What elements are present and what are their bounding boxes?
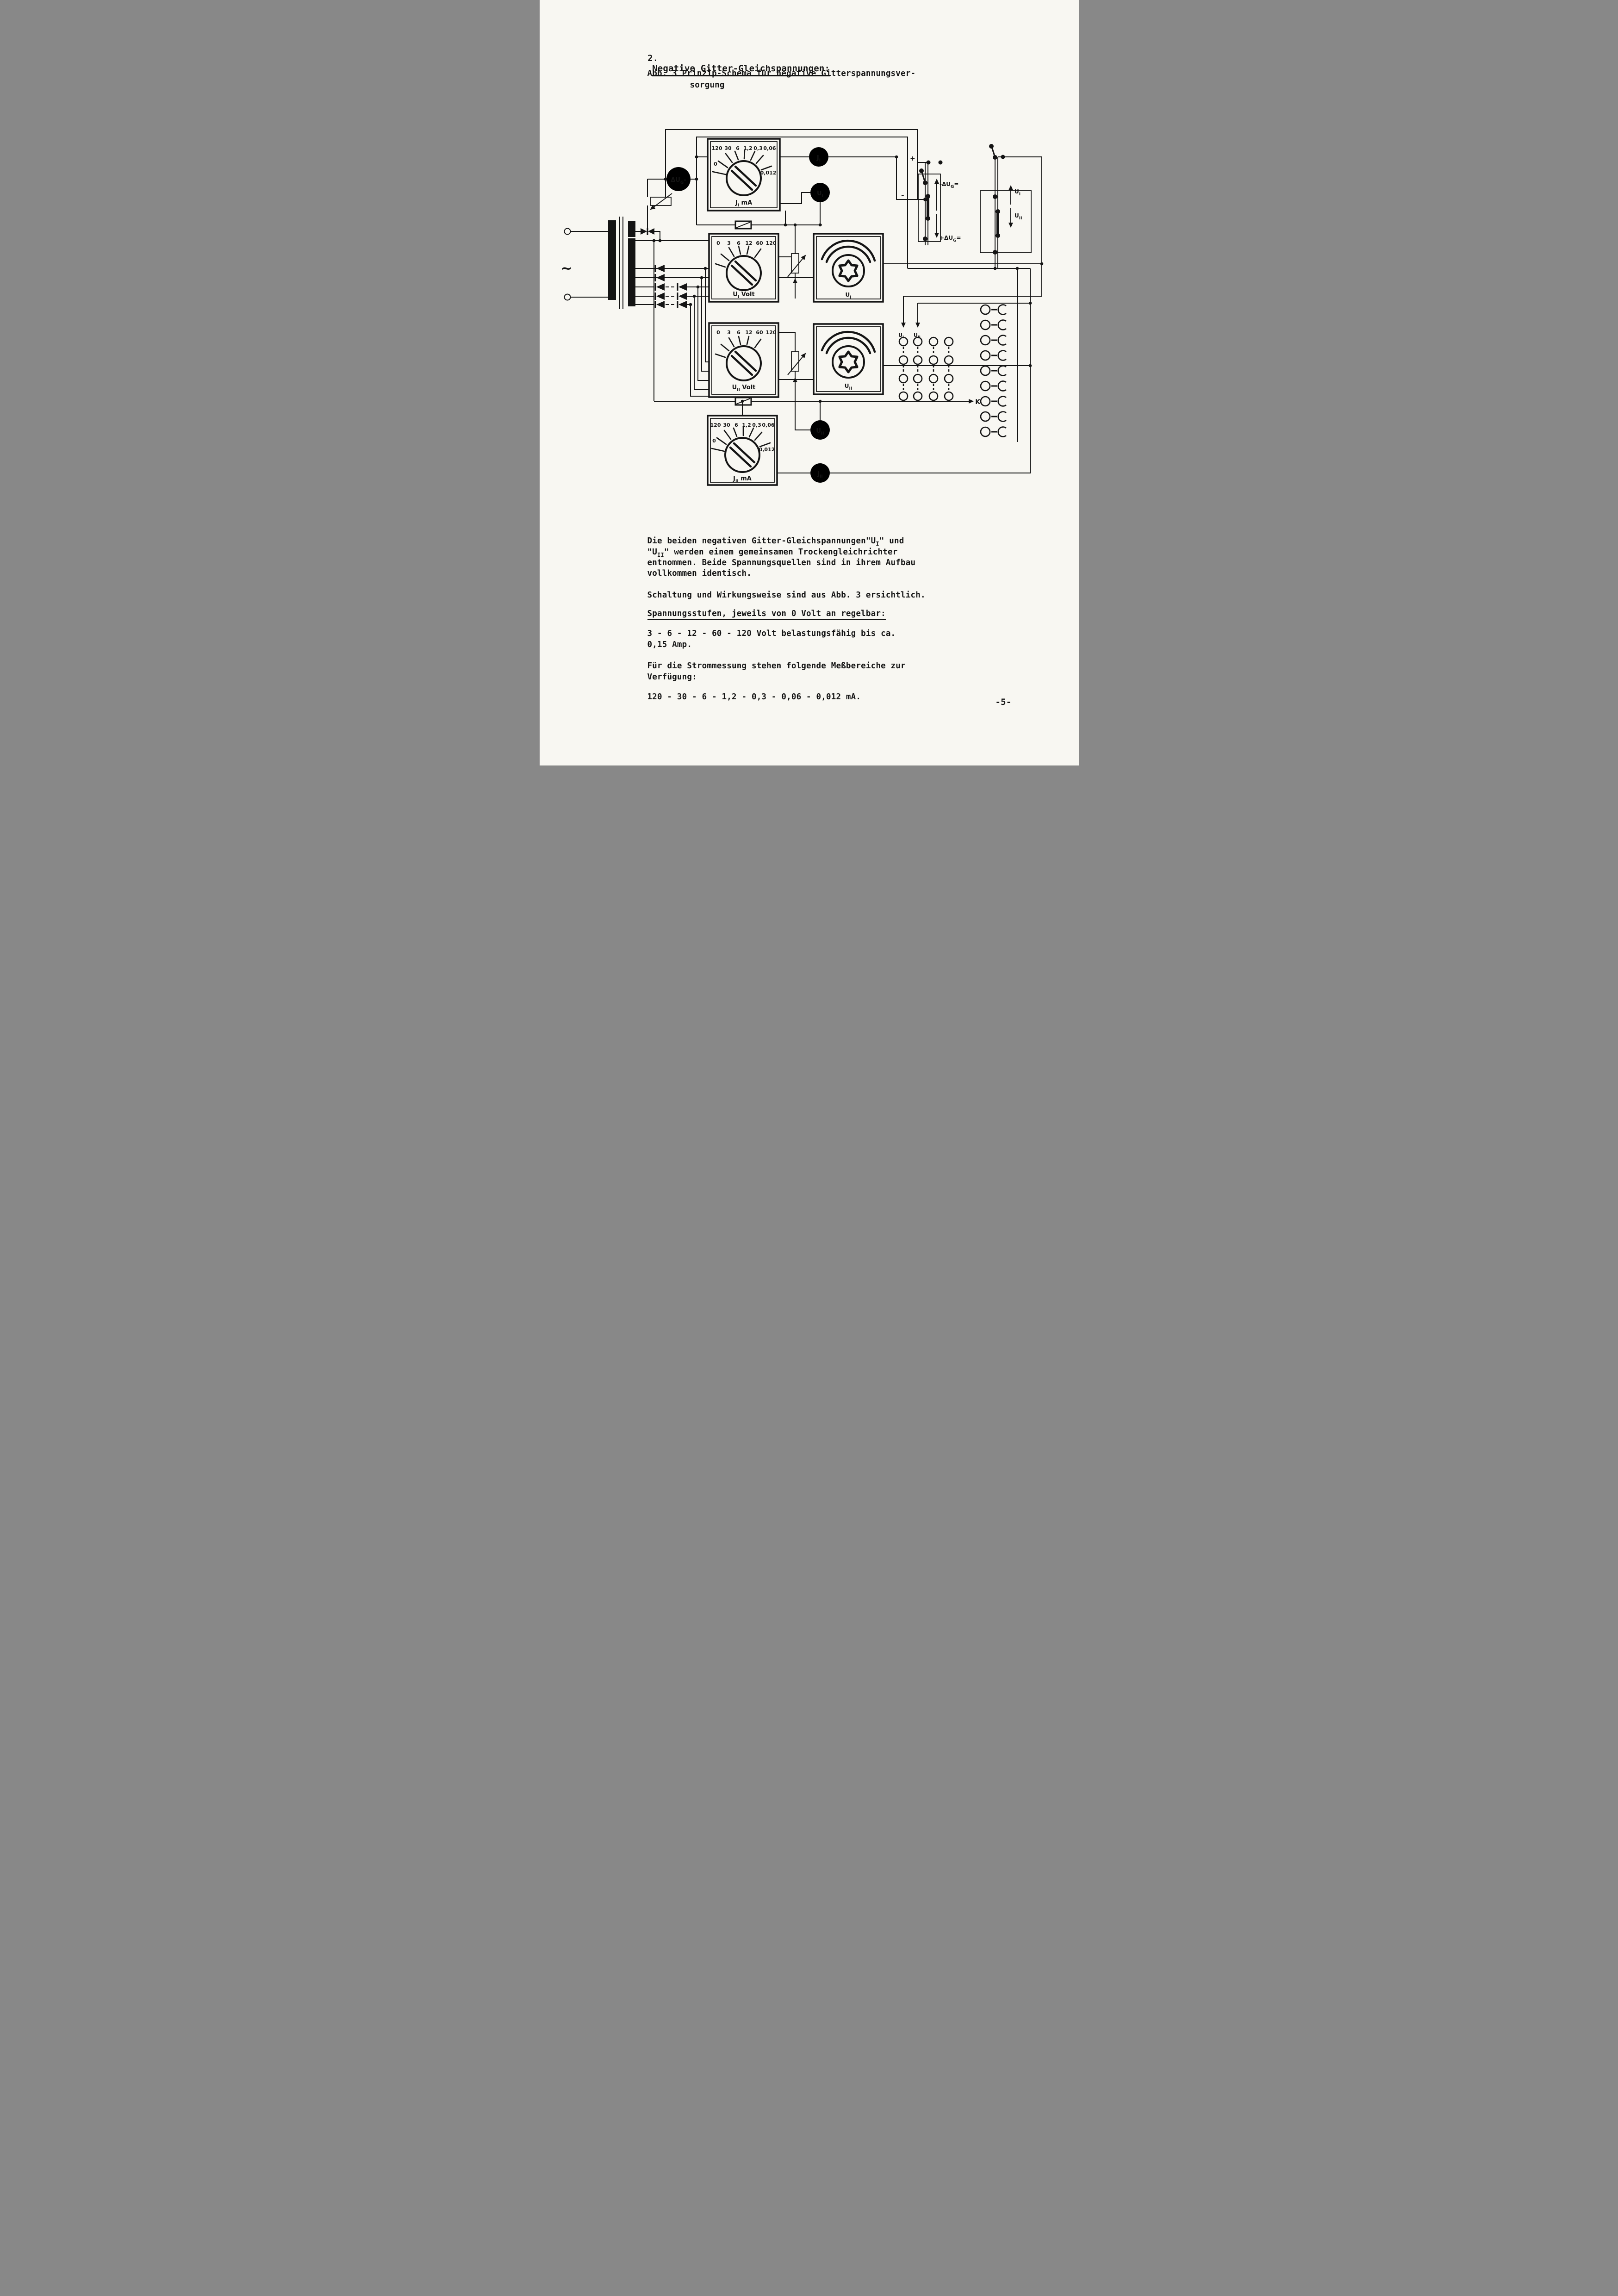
scale-label: 0,012 (760, 170, 776, 176)
scale-label: 0 (716, 330, 720, 336)
variac-ui: UI (814, 234, 883, 302)
rectifier-diode-bank (635, 239, 709, 396)
pos-dug-label: +ΔUG= (940, 235, 961, 243)
socket-row (981, 366, 1006, 376)
rotary-knob (725, 438, 759, 472)
scale-label: 12 (745, 240, 752, 246)
plus-label: + (910, 155, 915, 162)
bus-u2-label: UII (1014, 212, 1022, 221)
minus-label: - (901, 191, 904, 199)
primary-winding (608, 220, 616, 300)
diode-pair-left (641, 228, 647, 235)
body-line: Verfügung: (647, 672, 697, 682)
socket-row (981, 336, 1006, 345)
scale-label: 120 (710, 422, 721, 428)
scale-label: 120 (765, 240, 776, 246)
body-line-underlined: Spannungsstufen, jeweils von 0 Volt an r… (647, 609, 886, 618)
socket-row (981, 381, 1006, 391)
socket-row (981, 305, 1006, 315)
scale-label: 60 (756, 330, 763, 336)
body-line: Schaltung und Wirkungsweise sind aus Abb… (647, 591, 926, 600)
scale-label: 0,3 (752, 422, 761, 428)
scale-label: 0,3 (753, 145, 763, 151)
range-switch-jii-ma: 120 30 6 1,2 0,3 0,06 0 0,012 JII mA (708, 416, 777, 485)
k-terminal-label: K (975, 398, 981, 406)
body-line: Die beiden negativen Gitter-Gleichspannu… (647, 536, 904, 546)
scale-label: 120 (711, 145, 722, 151)
body-line: 120 - 30 - 6 - 1,2 - 0,3 - 0,06 - 0,012 … (647, 692, 861, 702)
meter-jii (810, 463, 830, 483)
scale-label: 30 (724, 145, 732, 151)
body-line: "UII" werden einem gemeinsamen Trockengl… (647, 548, 898, 557)
r1-rail (697, 201, 822, 229)
ac-symbol: ~ (560, 261, 572, 277)
diode-row (635, 265, 709, 272)
scale-label: 12 (745, 330, 752, 336)
variac-label: UII (844, 383, 852, 391)
scale-label: 0,06 (762, 422, 774, 428)
patch-panel: + - -ΔUG= +ΔUG= (901, 144, 1042, 268)
secondary-winding-main (628, 238, 635, 306)
socket-row (981, 351, 1006, 361)
scale-label: 30 (723, 422, 730, 428)
figure-caption-line2: sorgung (690, 81, 725, 90)
scale-label: 0 (714, 161, 717, 167)
range-switch-ui-volt: 0 3 6 12 60 120 UI Volt (709, 234, 778, 302)
variac-uii: UII (814, 324, 883, 394)
scale-label: 6 (737, 240, 741, 246)
figure-caption-line1: Abb. 3 Prinzip-Schema für negative Gitte… (647, 69, 916, 78)
diode-pair-right (648, 228, 654, 235)
body-line: 0,15 Amp. (647, 640, 692, 649)
rotary-knob (727, 346, 761, 380)
range-switch-ji-ma: 120 30 6 1,2 0,3 0,06 0 0,012 JI mA (708, 139, 780, 211)
page-number: -5- (996, 697, 1012, 707)
diode-row (635, 274, 709, 281)
scale-label: 3 (727, 330, 731, 336)
body-line: entnommen. Beide Spannungsquellen sind i… (647, 558, 916, 567)
secondary-winding-top (628, 221, 635, 237)
socket-row (981, 396, 1006, 406)
transformer: ~ (560, 217, 635, 309)
rotary-knob (727, 161, 761, 195)
scale-label: 6 (737, 330, 741, 336)
bus-u1-label: UI (1014, 188, 1021, 197)
switch-label: UII Volt (732, 384, 755, 392)
rotary-knob (727, 256, 761, 290)
scale-label: 3 (727, 240, 731, 246)
switch-label: UI Volt (733, 291, 754, 299)
scale-label: 0,06 (763, 145, 776, 151)
neg-dug-label: -ΔUG= (940, 181, 958, 189)
section-number: 2. (647, 53, 658, 63)
socket-row (981, 320, 1006, 330)
socket-grid: UI UII (898, 296, 953, 400)
series-pots (778, 225, 814, 430)
body-line: Für die Strommessung stehen folgende Meß… (647, 661, 906, 671)
scale-label: 60 (756, 240, 763, 246)
grid-circles (899, 337, 953, 400)
scale-label: 120 (765, 330, 776, 336)
diode-row (635, 301, 691, 308)
socket-row (981, 427, 1006, 437)
body-line: vollkommen identisch. (647, 569, 752, 578)
socket-column (981, 305, 1006, 437)
body-line: 3 - 6 - 12 - 60 - 120 Volt belastungsfäh… (647, 629, 896, 638)
socket-row (981, 412, 1006, 422)
switch-label: JI mA (734, 199, 752, 208)
scale-label: 0,012 (759, 447, 775, 453)
potentiometer-uii (791, 352, 799, 371)
document-page: ~ ΔUG- (540, 0, 1079, 765)
potentiometer-ui (791, 254, 799, 273)
range-switch-uii-volt: 0 3 6 12 60 120 UII Volt (709, 323, 778, 397)
circuit-diagram: ~ ΔUG- (540, 0, 1079, 765)
dug-meter-branch: ΔUG- (635, 130, 917, 268)
scale-label: 6 (734, 422, 738, 428)
scale-label: 0 (716, 240, 720, 246)
scale-label: 0 (712, 438, 716, 444)
scale-label: 6 (736, 145, 740, 151)
